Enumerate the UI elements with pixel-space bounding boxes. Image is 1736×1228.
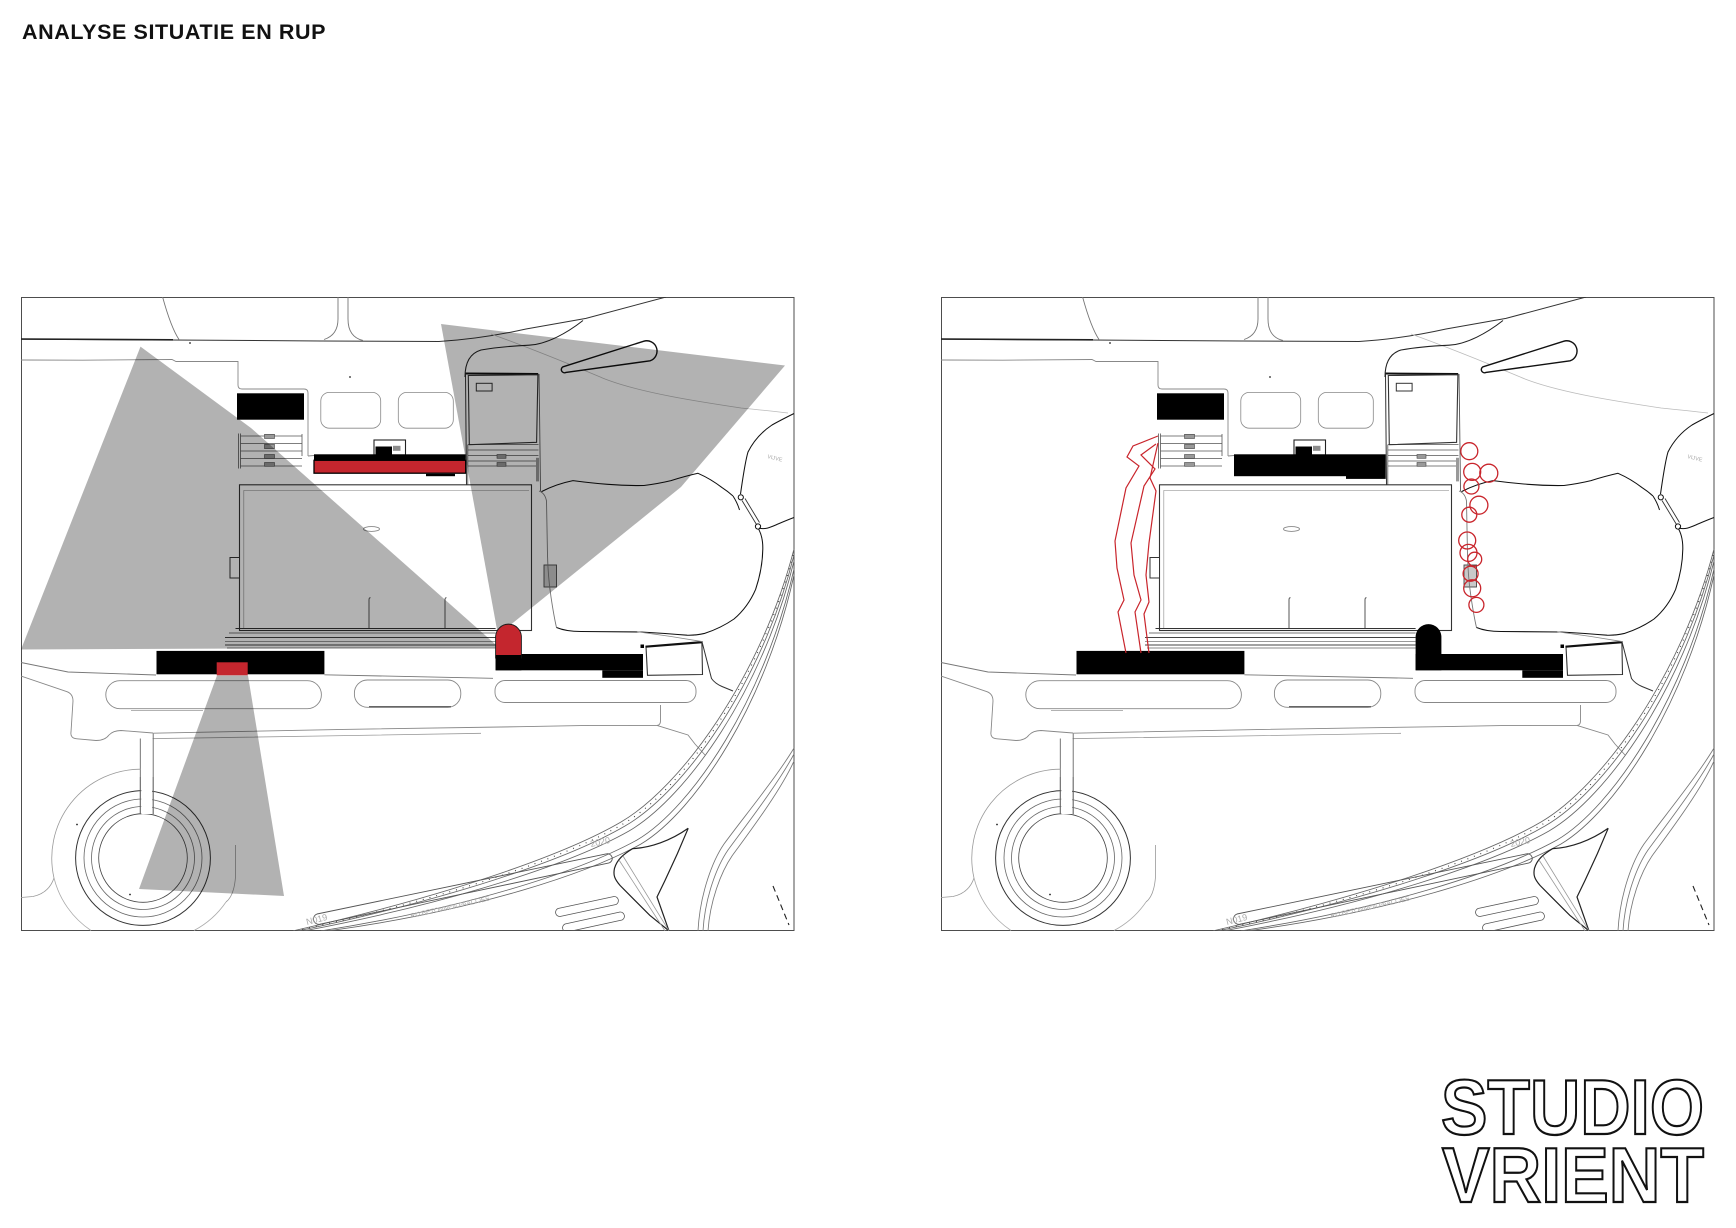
svg-text:ANALYSE SITUATIE EN RUP: ANALYSE SITUATIE EN RUP <box>22 20 326 44</box>
svg-text:VRIENT: VRIENT <box>1442 1131 1704 1219</box>
